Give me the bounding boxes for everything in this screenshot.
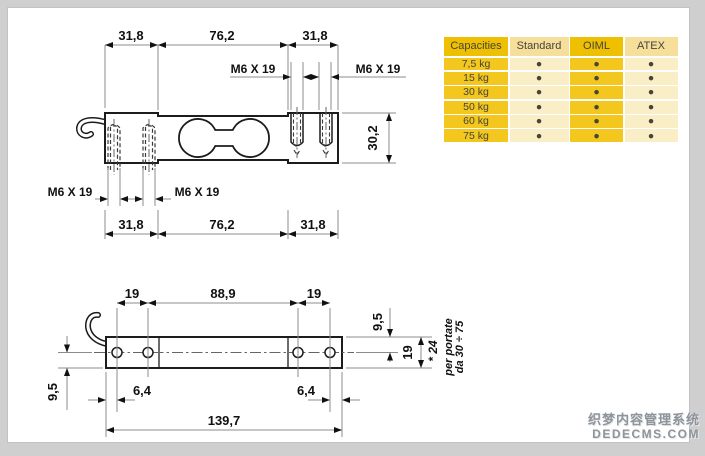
mark-standard: ● bbox=[510, 115, 569, 128]
dim-pitch-88-9: 88,9 bbox=[210, 286, 235, 301]
dim-bottom-31-8-left: 31,8 bbox=[118, 217, 143, 232]
capacity-label: 7,5 kg bbox=[444, 58, 508, 71]
watermark: 织梦内容管理系统 DEDECMS.COM bbox=[583, 412, 700, 441]
thread-spec-top-left: M6 X 19 bbox=[231, 62, 276, 76]
col-header-capacities: Capacities bbox=[444, 37, 508, 56]
thread-spec-bottom-left: M6 X 19 bbox=[48, 185, 93, 199]
top-view-body bbox=[79, 107, 338, 175]
mark-oiml: ● bbox=[570, 129, 623, 142]
side-view-body bbox=[88, 315, 354, 368]
mark-atex: ● bbox=[625, 101, 678, 114]
dim-pitch-19-left: 19 bbox=[125, 286, 139, 301]
mark-standard: ● bbox=[510, 72, 569, 85]
capacities-table: Capacities Standard OIML ATEX 7,5 kg ● ●… bbox=[444, 37, 678, 142]
dim-top-31-8-left: 31,8 bbox=[118, 28, 143, 43]
col-header-standard: Standard bbox=[510, 37, 569, 56]
mark-atex: ● bbox=[625, 86, 678, 99]
mark-atex: ● bbox=[625, 115, 678, 128]
note-star-24: * 24 bbox=[426, 340, 440, 362]
dim-height-30-2: 30,2 bbox=[365, 125, 380, 150]
mark-standard: ● bbox=[510, 129, 569, 142]
dim-top-76-2: 76,2 bbox=[209, 28, 234, 43]
capacity-label: 50 kg bbox=[444, 101, 508, 114]
col-header-oiml: OIML bbox=[570, 37, 623, 56]
dim-height-19: 19 bbox=[400, 345, 415, 359]
page: 31,8 76,2 31,8 M6 X 19 M6 X 19 30,2 M6 X… bbox=[0, 0, 705, 456]
dim-overall-139-7: 139,7 bbox=[208, 413, 241, 428]
mark-standard: ● bbox=[510, 58, 569, 71]
mark-oiml: ● bbox=[570, 72, 623, 85]
mark-oiml: ● bbox=[570, 115, 623, 128]
thread-spec-top-right: M6 X 19 bbox=[356, 62, 401, 76]
mark-atex: ● bbox=[625, 72, 678, 85]
mark-atex: ● bbox=[625, 129, 678, 142]
watermark-url: DEDECMS.COM bbox=[583, 427, 700, 441]
thread-spec-bottom-right: M6 X 19 bbox=[175, 185, 220, 199]
mark-atex: ● bbox=[625, 58, 678, 71]
mark-standard: ● bbox=[510, 86, 569, 99]
capacity-label: 15 kg bbox=[444, 72, 508, 85]
dim-pitch-19-right: 19 bbox=[307, 286, 321, 301]
dim-bottom-76-2: 76,2 bbox=[209, 217, 234, 232]
note-da-30-75: da 30 ÷ 75 bbox=[454, 320, 466, 373]
mark-oiml: ● bbox=[570, 101, 623, 114]
mark-standard: ● bbox=[510, 101, 569, 114]
capacity-label: 60 kg bbox=[444, 115, 508, 128]
dim-6-4-right: 6,4 bbox=[297, 383, 316, 398]
capacity-label: 75 kg bbox=[444, 129, 508, 142]
dim-9-5-left: 9,5 bbox=[45, 383, 60, 401]
dim-top-31-8-right: 31,8 bbox=[302, 28, 327, 43]
capacity-label: 30 kg bbox=[444, 86, 508, 99]
dim-bottom-31-8-right: 31,8 bbox=[300, 217, 325, 232]
watermark-chinese: 织梦内容管理系统 bbox=[583, 412, 700, 427]
dim-9-5-right: 9,5 bbox=[370, 313, 385, 331]
mark-oiml: ● bbox=[570, 58, 623, 71]
mark-oiml: ● bbox=[570, 86, 623, 99]
dim-6-4-left: 6,4 bbox=[133, 383, 152, 398]
col-header-atex: ATEX bbox=[625, 37, 678, 56]
